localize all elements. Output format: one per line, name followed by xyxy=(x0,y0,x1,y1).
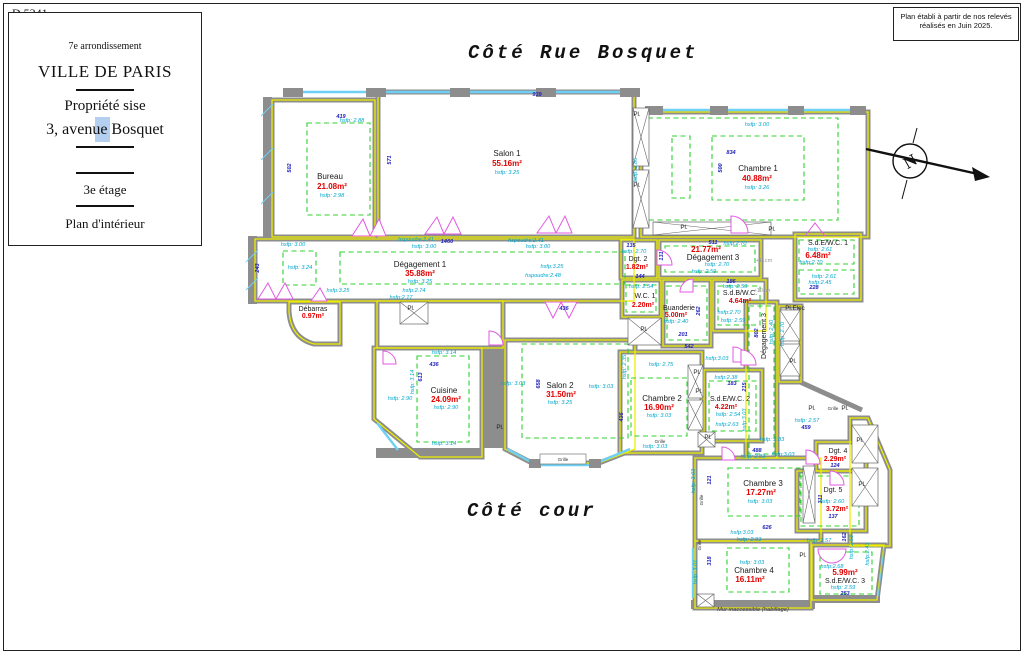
plan-sheet: D.5341 7e arrondissement VILLE DE PARIS … xyxy=(0,0,1024,653)
title-block: 7e arrondissement VILLE DE PARIS Proprié… xyxy=(8,12,202,246)
divider xyxy=(76,89,134,91)
propriete-label: Propriété sise xyxy=(9,98,201,115)
floor-label: 3e étage xyxy=(9,182,201,198)
plan-type-label: Plan d'intérieur xyxy=(9,216,201,232)
divider xyxy=(76,146,134,148)
arrondissement-label: 7e arrondissement xyxy=(9,41,201,52)
divider xyxy=(76,172,134,174)
courtyard-side-label: Côté cour xyxy=(467,500,597,522)
survey-note-line1: Plan établi à partir de nos relevés xyxy=(894,12,1018,21)
divider xyxy=(76,205,134,207)
survey-note: Plan établi à partir de nos relevés réal… xyxy=(893,7,1019,41)
city-label: VILLE DE PARIS xyxy=(9,62,201,82)
address-label: 3, avenue Bosquet xyxy=(9,121,201,139)
survey-note-line2: réalisés en Juin 2025. xyxy=(894,21,1018,30)
street-side-label: Côté Rue Bosquet xyxy=(468,42,698,64)
